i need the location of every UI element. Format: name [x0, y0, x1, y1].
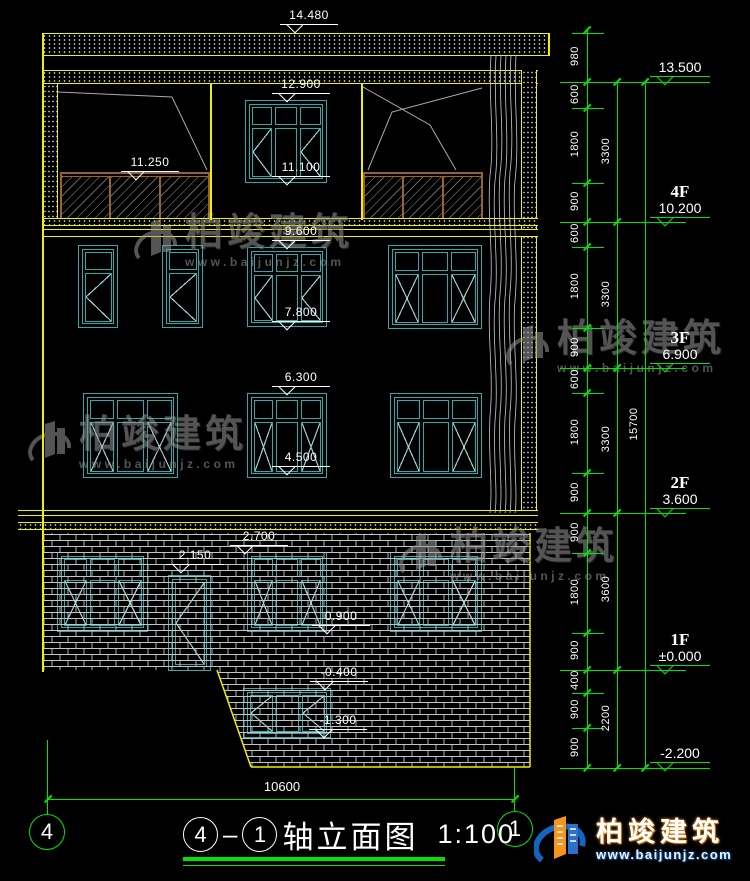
title-dash: – [223, 819, 237, 850]
elev-marker: 4.500 [272, 451, 330, 473]
title-scale: 1:100 [437, 819, 515, 850]
elev-marker: 2.150 [166, 549, 224, 571]
bottom-dim-label: 10600 [252, 779, 312, 794]
bottom-dim-line [48, 799, 515, 800]
floor-marker: 3F6.900 [650, 329, 710, 370]
roof-slope-lines [0, 0, 750, 300]
dim-label: 600 [569, 72, 581, 116]
axis-bubble-4: 4 [29, 814, 65, 850]
brand-name: 柏竣建筑 [596, 818, 732, 848]
elev-marker: -1.300 [309, 714, 367, 736]
cad-elevation-drawing: 柏竣建筑 www.baijunjz.com 柏竣建筑 www.baijunjz.… [0, 0, 750, 881]
wavy-stone-column [487, 56, 521, 513]
dim-label: 1800 [569, 264, 581, 308]
pier-line-left [210, 84, 212, 220]
floor-marker: 1F±0.000 [650, 631, 710, 672]
dim-label: 600 [569, 211, 581, 255]
elev-marker: 12.900 [272, 78, 330, 100]
floor-marker: 13.500 [650, 59, 710, 83]
elev-marker: 9.600 [272, 225, 330, 247]
dim-label: 3600 [600, 567, 612, 611]
dim-chain-line-3 [645, 82, 646, 768]
pier-line-right [361, 84, 363, 220]
dim-label: 1800 [569, 122, 581, 166]
elev-marker: 7.800 [272, 306, 330, 328]
title-axis-start: 4 [183, 817, 218, 852]
roof-slab-end-cap [548, 33, 550, 56]
axis-line-left [47, 740, 48, 814]
dim-label: 600 [569, 357, 581, 401]
dim-label: 1800 [569, 410, 581, 454]
elev-marker: -0.400 [310, 666, 368, 688]
dim-label: 3300 [600, 272, 612, 316]
floor-marker: -2.200 [650, 745, 710, 769]
dim-label: 3300 [600, 129, 612, 173]
floor-marker: 2F3.600 [650, 474, 710, 515]
elev-marker: 2.700 [230, 530, 288, 552]
drawing-title: 4 – 1 轴立面图 1:100 [183, 812, 515, 857]
brand-logo: 柏竣建筑 www.baijunjz.com [534, 810, 732, 870]
title-underline-thick [183, 857, 445, 861]
elev-marker: 11.100 [272, 161, 330, 183]
dim-label: 900 [569, 725, 581, 769]
elev-marker: 0.900 [312, 610, 370, 632]
dim-chain-line-2 [617, 82, 618, 768]
elev-marker: 14.480 [280, 9, 338, 31]
dim-label: 15700 [628, 402, 640, 446]
dim-label: 1800 [569, 570, 581, 614]
dim-label: 3300 [600, 417, 612, 461]
dim-label: 900 [569, 470, 581, 514]
floor-marker: 4F10.200 [650, 183, 710, 224]
elev-marker: 6.300 [272, 371, 330, 393]
dim-label: 2200 [600, 696, 612, 740]
dim-label: 900 [569, 510, 581, 554]
brand-logo-icon [534, 810, 588, 870]
title-underline-thin [183, 865, 445, 866]
title-name: 轴立面图 [282, 812, 418, 857]
axis-line-right [514, 768, 515, 811]
elev-marker: 11.250 [121, 156, 179, 178]
brand-url: www.baijunjz.com [596, 847, 732, 862]
dim-chain-line-1 [587, 30, 588, 768]
title-axis-end: 1 [242, 817, 277, 852]
wall-line-left [42, 33, 44, 672]
